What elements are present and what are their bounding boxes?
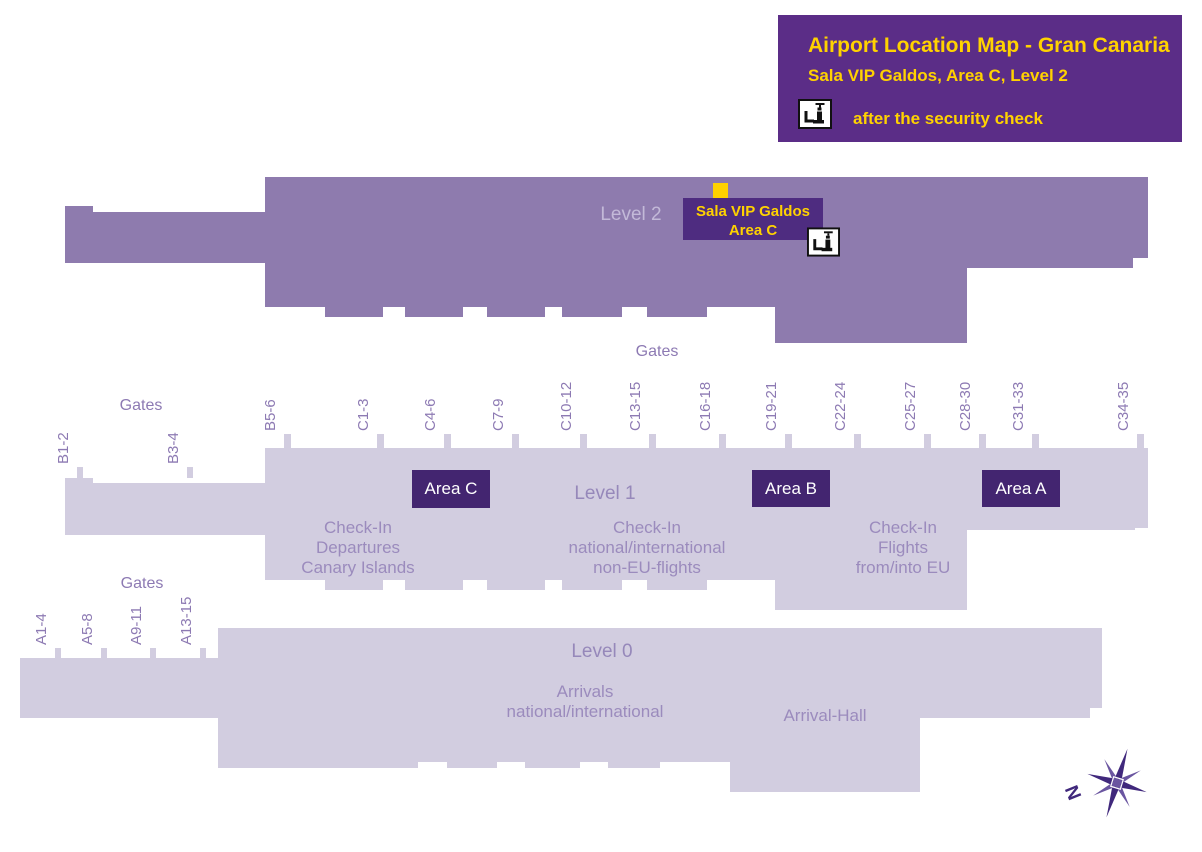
- security-check-icon: [798, 99, 832, 129]
- gate-tick: [284, 434, 291, 449]
- gate-label: B5-6: [263, 399, 279, 431]
- gate-label: B3-4: [166, 432, 182, 464]
- gate-label: C19-21: [764, 382, 780, 431]
- gates-title-top: Gates: [610, 343, 704, 361]
- map-subtitle: Sala VIP Galdos, Area C, Level 2: [808, 66, 1168, 86]
- compass-north-label: N: [1062, 782, 1087, 803]
- sala-vip-galdos-label-box: Sala VIP Galdos Area C: [683, 198, 823, 240]
- gate-label: C25-27: [903, 382, 919, 431]
- gate-tick: [649, 434, 656, 449]
- gate-tick: [1032, 434, 1039, 449]
- area-c-box: Area C: [412, 470, 490, 508]
- gate-tick: [979, 434, 986, 449]
- gate-label: A1-4: [34, 613, 50, 645]
- vip-label-line1: Sala VIP Galdos: [683, 202, 823, 221]
- level2-label: Level 2: [570, 204, 692, 226]
- compass-rose-icon: N: [1040, 728, 1190, 843]
- level0-right-extension: [730, 718, 920, 792]
- gate-label: C16-18: [698, 382, 714, 431]
- gate-label: C10-12: [559, 382, 575, 431]
- map-title-box: Airport Location Map - Gran Canaria Sala…: [778, 15, 1182, 142]
- gate-label: C7-9: [491, 398, 507, 431]
- level0-label: Level 0: [542, 641, 662, 663]
- gate-tick: [785, 434, 792, 449]
- gate-label: A9-11: [129, 606, 145, 645]
- gate-tick: [1137, 434, 1144, 449]
- gate-tick: [377, 434, 384, 449]
- gate-tick: [854, 434, 861, 449]
- gate-label: C4-6: [423, 398, 439, 431]
- checkin-departures-canary: Check-In Departures Canary Islands: [268, 518, 448, 578]
- level2-left-pier: [65, 206, 265, 263]
- arrival-hall-text: Arrival-Hall: [745, 706, 905, 726]
- level2-right-extension: [775, 268, 967, 343]
- area-a-box: Area A: [982, 470, 1060, 507]
- vip-label-line2: Area C: [683, 221, 823, 240]
- security-check-icon: [807, 227, 840, 257]
- checkin-national-international: Check-In national/international non-EU-f…: [537, 518, 757, 578]
- gate-tick: [444, 434, 451, 449]
- area-b-box: Area B: [752, 470, 830, 507]
- gate-label: B1-2: [56, 432, 72, 464]
- map-title: Airport Location Map - Gran Canaria: [808, 34, 1168, 58]
- gate-label: C34-35: [1116, 382, 1132, 431]
- level0-left-pier: [20, 658, 218, 718]
- gate-tick: [719, 434, 726, 449]
- vip-location-marker: [713, 183, 728, 198]
- gate-tick: [924, 434, 931, 449]
- arrivals-text: Arrivals national/international: [465, 682, 705, 722]
- gate-tick: [512, 434, 519, 449]
- gate-label: A13-15: [179, 597, 195, 645]
- gate-label: C1-3: [356, 398, 372, 431]
- security-check-note: after the security check: [853, 109, 1153, 129]
- gate-label: A5-8: [80, 613, 96, 645]
- gate-label: C13-15: [628, 382, 644, 431]
- gates-title-left: Gates: [100, 397, 182, 415]
- gate-label: C22-24: [833, 382, 849, 431]
- checkin-flights-eu: Check-In Flights from/into EU: [813, 518, 993, 578]
- gates-title-level0: Gates: [100, 575, 184, 593]
- gate-tick: [580, 434, 587, 449]
- gate-label: C31-33: [1011, 382, 1027, 431]
- level1-label: Level 1: [545, 483, 665, 505]
- level1-left-pier: [65, 478, 265, 535]
- gate-label: C28-30: [958, 382, 974, 431]
